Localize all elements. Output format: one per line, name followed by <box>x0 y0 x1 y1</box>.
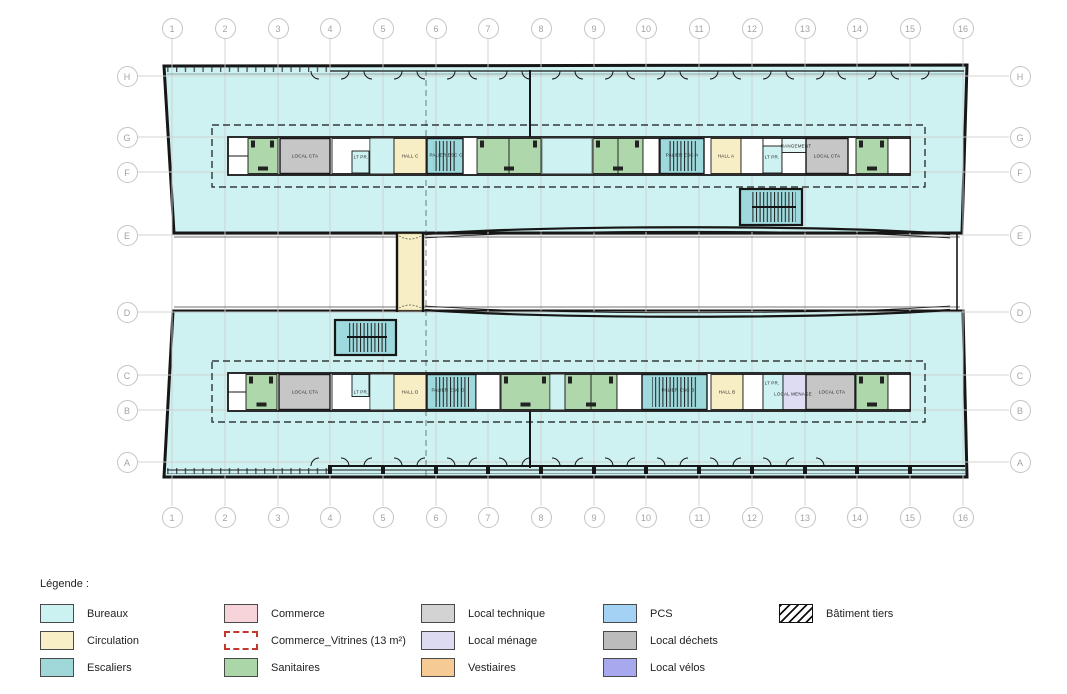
legend-column: Local techniqueLocal ménageVestiaires <box>421 596 545 677</box>
grid-bubble: 15 <box>900 507 921 528</box>
legend-item: Bureaux <box>40 604 139 623</box>
legend-label: Circulation <box>87 635 139 647</box>
stair-top-wing <box>740 189 802 225</box>
grid-bubble: 1 <box>162 507 183 528</box>
grid-bubble: 10 <box>636 18 657 39</box>
grid-bubble: 12 <box>742 18 763 39</box>
grid-bubble: 8 <box>531 18 552 39</box>
legend-item: Local vélos <box>603 658 718 677</box>
legend-swatch <box>224 604 258 623</box>
grid-bubble: D <box>1010 302 1031 323</box>
room-label: HALL B <box>719 390 736 395</box>
legend-swatch <box>421 658 455 677</box>
grid-bubble: 2 <box>215 18 236 39</box>
legend-swatch <box>779 604 813 623</box>
grid-bubble: 6 <box>426 507 447 528</box>
grid-bubble: G <box>117 127 138 148</box>
legend-label: Bâtiment tiers <box>826 608 893 620</box>
circulation-bridge <box>397 234 423 310</box>
legend-swatch <box>603 604 637 623</box>
grid-bubble: C <box>1010 365 1031 386</box>
legend-item: Local déchets <box>603 631 718 650</box>
grid-bubble: 3 <box>268 18 289 39</box>
grid-bubble: 16 <box>953 18 974 39</box>
room-label: LOCAL CTA <box>819 390 845 395</box>
grid-bubble: 11 <box>689 18 710 39</box>
grid-bubble: 12 <box>742 507 763 528</box>
grid-bubble: 13 <box>795 18 816 39</box>
grid-bubble: D <box>117 302 138 323</box>
legend-column: BureauxCirculationEscaliers <box>40 596 139 677</box>
room-label: LOCAL CTA <box>292 390 318 395</box>
legend-swatch <box>603 631 637 650</box>
room-label: HALL C <box>402 154 419 159</box>
legend-label: Commerce <box>271 608 325 620</box>
legend-item: Circulation <box>40 631 139 650</box>
legend-label: Sanitaires <box>271 662 320 674</box>
legend-label: Local déchets <box>650 635 718 647</box>
legend-label: Vestiaires <box>468 662 516 674</box>
room-label: PALIER ESC A <box>666 153 699 158</box>
legend-item: Escaliers <box>40 658 139 677</box>
grid-bubble: 14 <box>847 18 868 39</box>
grid-bubble: 11 <box>689 507 710 528</box>
legend-item: PCS <box>603 604 718 623</box>
grid-bubble: F <box>1010 162 1031 183</box>
grid-bubble: 4 <box>320 18 341 39</box>
legend-label: PCS <box>650 608 673 620</box>
grid-bubble: 13 <box>795 507 816 528</box>
legend-swatch <box>421 631 455 650</box>
legend-column: Bâtiment tiers <box>779 596 893 623</box>
grid-bubble: C <box>117 365 138 386</box>
legend-label: Bureaux <box>87 608 128 620</box>
grid-bubble: 8 <box>531 507 552 528</box>
room-label: HALL A <box>718 154 734 159</box>
grid-bubble: H <box>1010 66 1031 87</box>
room-label: PALIER ESC D <box>431 388 464 393</box>
legend-swatch <box>603 658 637 677</box>
building-wings <box>164 65 967 477</box>
legend-column: CommerceCommerce_Vitrines (13 m²)Sanitai… <box>224 596 406 677</box>
grid-bubble: 2 <box>215 507 236 528</box>
grid-bubble: 3 <box>268 507 289 528</box>
legend-swatch <box>40 658 74 677</box>
legend-swatch <box>224 631 258 650</box>
legend-item: Vestiaires <box>421 658 545 677</box>
room-label: RANGEMENT <box>781 144 812 149</box>
legend-item: Local ménage <box>421 631 545 650</box>
grid-bubble: 1 <box>162 18 183 39</box>
legend-label: Escaliers <box>87 662 132 674</box>
grid-bubble: H <box>117 66 138 87</box>
legend-column: PCSLocal déchetsLocal vélos <box>603 596 718 677</box>
room-label: LT PR. <box>354 390 369 395</box>
grid-bubble: A <box>117 452 138 473</box>
grid-bubble: F <box>117 162 138 183</box>
room-label: LT PR. <box>354 155 369 160</box>
grid-bubble: 14 <box>847 507 868 528</box>
grid-bubble: 6 <box>426 18 447 39</box>
grid-bubble: 7 <box>478 18 499 39</box>
legend-label: Local technique <box>468 608 545 620</box>
legend-swatch <box>224 658 258 677</box>
legend-item: Sanitaires <box>224 658 406 677</box>
grid-bubble: 10 <box>636 507 657 528</box>
floor-plan-drawing <box>0 0 1067 694</box>
legend-label: Local ménage <box>468 635 537 647</box>
legend-item: Local technique <box>421 604 545 623</box>
grid-bubble: 15 <box>900 18 921 39</box>
stair-bottom-wing <box>335 320 396 355</box>
grid-bubble: B <box>1010 400 1031 421</box>
room-label: PALIER ESC B <box>662 388 695 393</box>
grid-bubble: E <box>1010 225 1031 246</box>
legend-label: Commerce_Vitrines (13 m²) <box>271 635 406 647</box>
legend-item: Commerce <box>224 604 406 623</box>
grid-bubble: 9 <box>584 18 605 39</box>
room-label: HALL D <box>402 390 419 395</box>
room-label: LOCAL CTA <box>292 154 318 159</box>
grid-bubble: E <box>117 225 138 246</box>
grid-bubble: B <box>117 400 138 421</box>
grid-bubble: 5 <box>373 507 394 528</box>
legend-swatch <box>421 604 455 623</box>
grid-bubble: 5 <box>373 18 394 39</box>
room-label: LT PR. <box>765 155 780 160</box>
room-label: PALIER ESC C <box>429 153 462 158</box>
legend-title: Légende : <box>40 578 89 590</box>
room-label: LOCAL MENAGE <box>774 392 812 397</box>
legend-item: Bâtiment tiers <box>779 604 893 623</box>
legend-item: Commerce_Vitrines (13 m²) <box>224 631 406 650</box>
room-label: LT PR. <box>765 381 780 386</box>
floor-plan-page: 1122334455667788991010111112121313141415… <box>0 0 1067 694</box>
legend-swatch <box>40 604 74 623</box>
grid-bubble: 7 <box>478 507 499 528</box>
grid-bubble: A <box>1010 452 1031 473</box>
legend-swatch <box>40 631 74 650</box>
grid-bubble: 16 <box>953 507 974 528</box>
room-label: LOCAL CTA <box>814 154 840 159</box>
grid-bubble: 4 <box>320 507 341 528</box>
grid-bubble: G <box>1010 127 1031 148</box>
grid-bubble: 9 <box>584 507 605 528</box>
legend-label: Local vélos <box>650 662 705 674</box>
